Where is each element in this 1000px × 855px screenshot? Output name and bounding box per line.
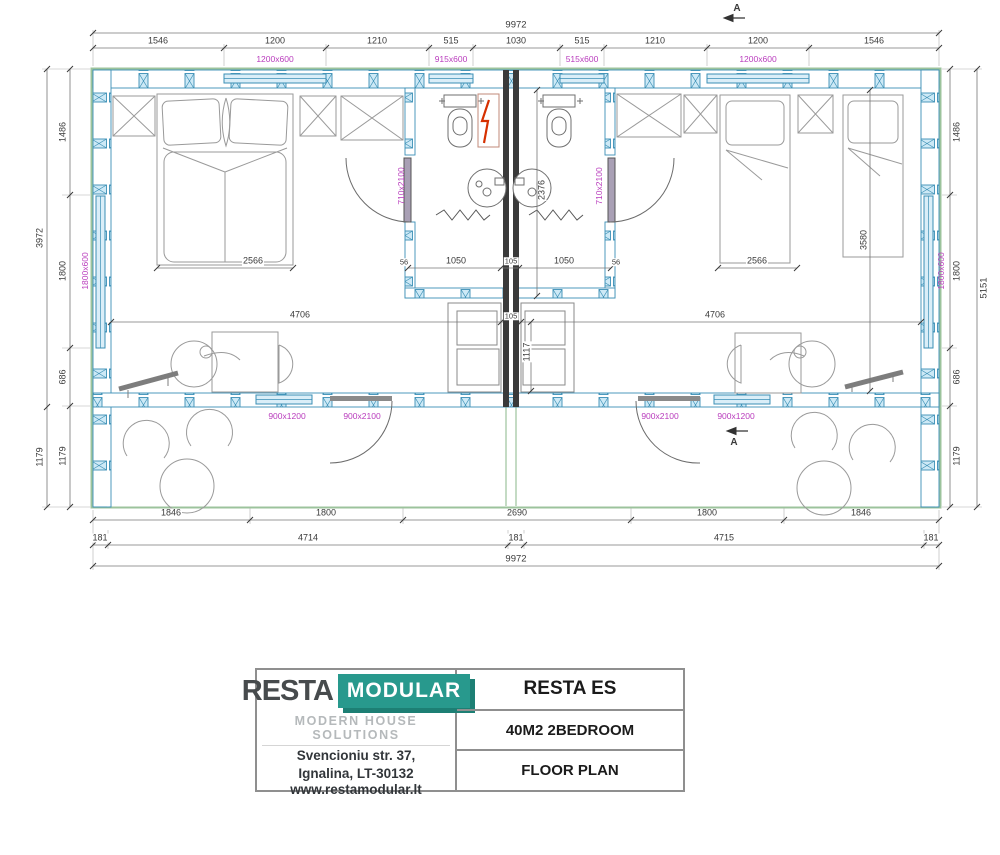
dim-label: 181: [922, 534, 939, 543]
tub-chair-icon: [187, 409, 233, 446]
dim-label: 1210: [644, 37, 666, 46]
dim-label: 1179: [36, 446, 45, 467]
window-size-label: 900x1200: [716, 412, 755, 421]
dim-label: 9972: [504, 20, 527, 30]
dim-label: 515: [442, 37, 459, 46]
dim-label: 1800: [696, 509, 718, 518]
dim-label: 181: [91, 534, 108, 543]
dim-label: 4706: [289, 311, 311, 320]
dim-label: 2690: [506, 509, 528, 518]
dim-label: 105: [504, 257, 519, 265]
door-size-label: 710x2100: [595, 166, 604, 205]
chair-icon: [727, 345, 741, 383]
section-label: A: [732, 4, 741, 14]
tub-chair-icon: [791, 412, 837, 450]
door-size-label: 900x2100: [342, 412, 381, 421]
dim-label: 1179: [953, 445, 962, 466]
dim-label: 4715: [713, 534, 735, 543]
double-bed-icon: [157, 94, 293, 265]
project-name: RESTA ES: [457, 670, 683, 711]
dim-label: 1117: [523, 342, 532, 363]
logo: RESTA MODULAR: [242, 674, 470, 708]
dim-label: 2566: [242, 257, 264, 266]
dim-label: 2376: [538, 179, 547, 201]
toilet-icon: [439, 95, 484, 147]
wardrobe-icon: [684, 95, 717, 133]
wardrobe-icon: [113, 96, 155, 136]
tub-chair-icon: [123, 420, 169, 458]
website-text: www.restamodular.lt: [290, 782, 422, 797]
dim-label: 1179: [59, 445, 68, 466]
terrace-furniture: [123, 409, 895, 515]
dim-label: 1030: [505, 37, 527, 46]
door-size-label: 710x2100: [397, 166, 406, 205]
section-label: A: [729, 438, 738, 448]
bench-icon: [845, 372, 903, 392]
title-block: RESTA MODULAR MODERN HOUSE SOLUTIONS Sve…: [255, 668, 685, 792]
dim-label: 2566: [746, 257, 768, 266]
dim-label: 1050: [445, 257, 467, 266]
single-bed-icon: [720, 95, 790, 263]
dim-label: 1200: [747, 37, 769, 46]
logo-tagline: MODERN HOUSE SOLUTIONS: [262, 714, 450, 746]
dim-label: 105: [504, 312, 519, 320]
chair-icon: [279, 345, 293, 383]
shower-zigzag: [436, 210, 490, 220]
address-line-1: Svencioniu str. 37,: [297, 748, 416, 764]
dim-label: 1800: [59, 260, 68, 282]
dim-label: 56: [399, 258, 409, 266]
window-size-label: 515x600: [565, 55, 600, 64]
dim-label: 1800: [315, 509, 337, 518]
dim-label: 686: [953, 368, 962, 385]
desk-icon: [212, 332, 278, 392]
dim-label: 1486: [953, 121, 962, 143]
dim-label: 1486: [59, 121, 68, 143]
sheet-name: FLOOR PLAN: [457, 751, 683, 790]
dim-label: 1210: [366, 37, 388, 46]
dim-label: 181: [507, 534, 524, 543]
wardrobe-icon: [300, 96, 336, 136]
dim-label: 1846: [850, 509, 872, 518]
model-name: 40M2 2BEDROOM: [457, 711, 683, 752]
dim-label: 1546: [147, 37, 169, 46]
dim-label: 9972: [504, 554, 527, 564]
dim-label: 3972: [36, 227, 45, 249]
person-icon: [171, 341, 240, 387]
floor-plan-sheet: 9972 1546 1200 1210 515 1030 515 1210 12…: [0, 0, 1000, 855]
wardrobe-icon: [617, 94, 681, 137]
dim-label: 1050: [553, 257, 575, 266]
door-size-label: 900x2100: [640, 412, 679, 421]
toilet-icon: [538, 95, 583, 147]
window-size-label: 1800x600: [81, 251, 90, 290]
dim-label: 1846: [160, 509, 182, 518]
wardrobe-icon: [341, 96, 403, 140]
window-size-label: 1800x600: [937, 251, 946, 290]
title-block-info-cell: RESTA ES 40M2 2BEDROOM FLOOR PLAN: [457, 670, 683, 790]
dim-label: 5151: [979, 276, 989, 299]
sink-icon: [468, 169, 506, 207]
single-bed-icon: [843, 95, 903, 257]
wardrobe-icon: [798, 95, 833, 133]
dim-label: 686: [59, 368, 68, 385]
dim-label: 56: [611, 258, 621, 266]
dim-label: 4714: [297, 534, 319, 543]
left-bathroom: [436, 94, 506, 220]
dim-label: 1200: [264, 37, 286, 46]
title-block-logo-cell: RESTA MODULAR MODERN HOUSE SOLUTIONS Sve…: [257, 670, 457, 790]
dim-label: 515: [573, 37, 590, 46]
logo-modular-box: MODULAR: [338, 674, 470, 708]
window-size-label: 1200x600: [255, 55, 294, 64]
address-line-2: Ignalina, LT-30132: [298, 766, 413, 782]
center-party-wall: [503, 70, 519, 407]
round-table-icon: [160, 459, 214, 513]
dim-label: 1546: [863, 37, 885, 46]
desk-icon: [735, 333, 801, 393]
window-size-label: 900x1200: [267, 412, 306, 421]
tub-chair-icon: [849, 424, 895, 462]
dim-label: 4706: [704, 311, 726, 320]
person-icon: [770, 341, 835, 387]
right-bathroom: [513, 95, 583, 220]
dim-label: 3580: [860, 229, 869, 251]
window-size-label: 915x600: [434, 55, 469, 64]
window-size-label: 1200x600: [738, 55, 777, 64]
dim-label: 1800: [953, 260, 962, 282]
logo-resta-text: RESTA: [242, 675, 333, 708]
left-bedroom-furniture: [113, 94, 403, 398]
